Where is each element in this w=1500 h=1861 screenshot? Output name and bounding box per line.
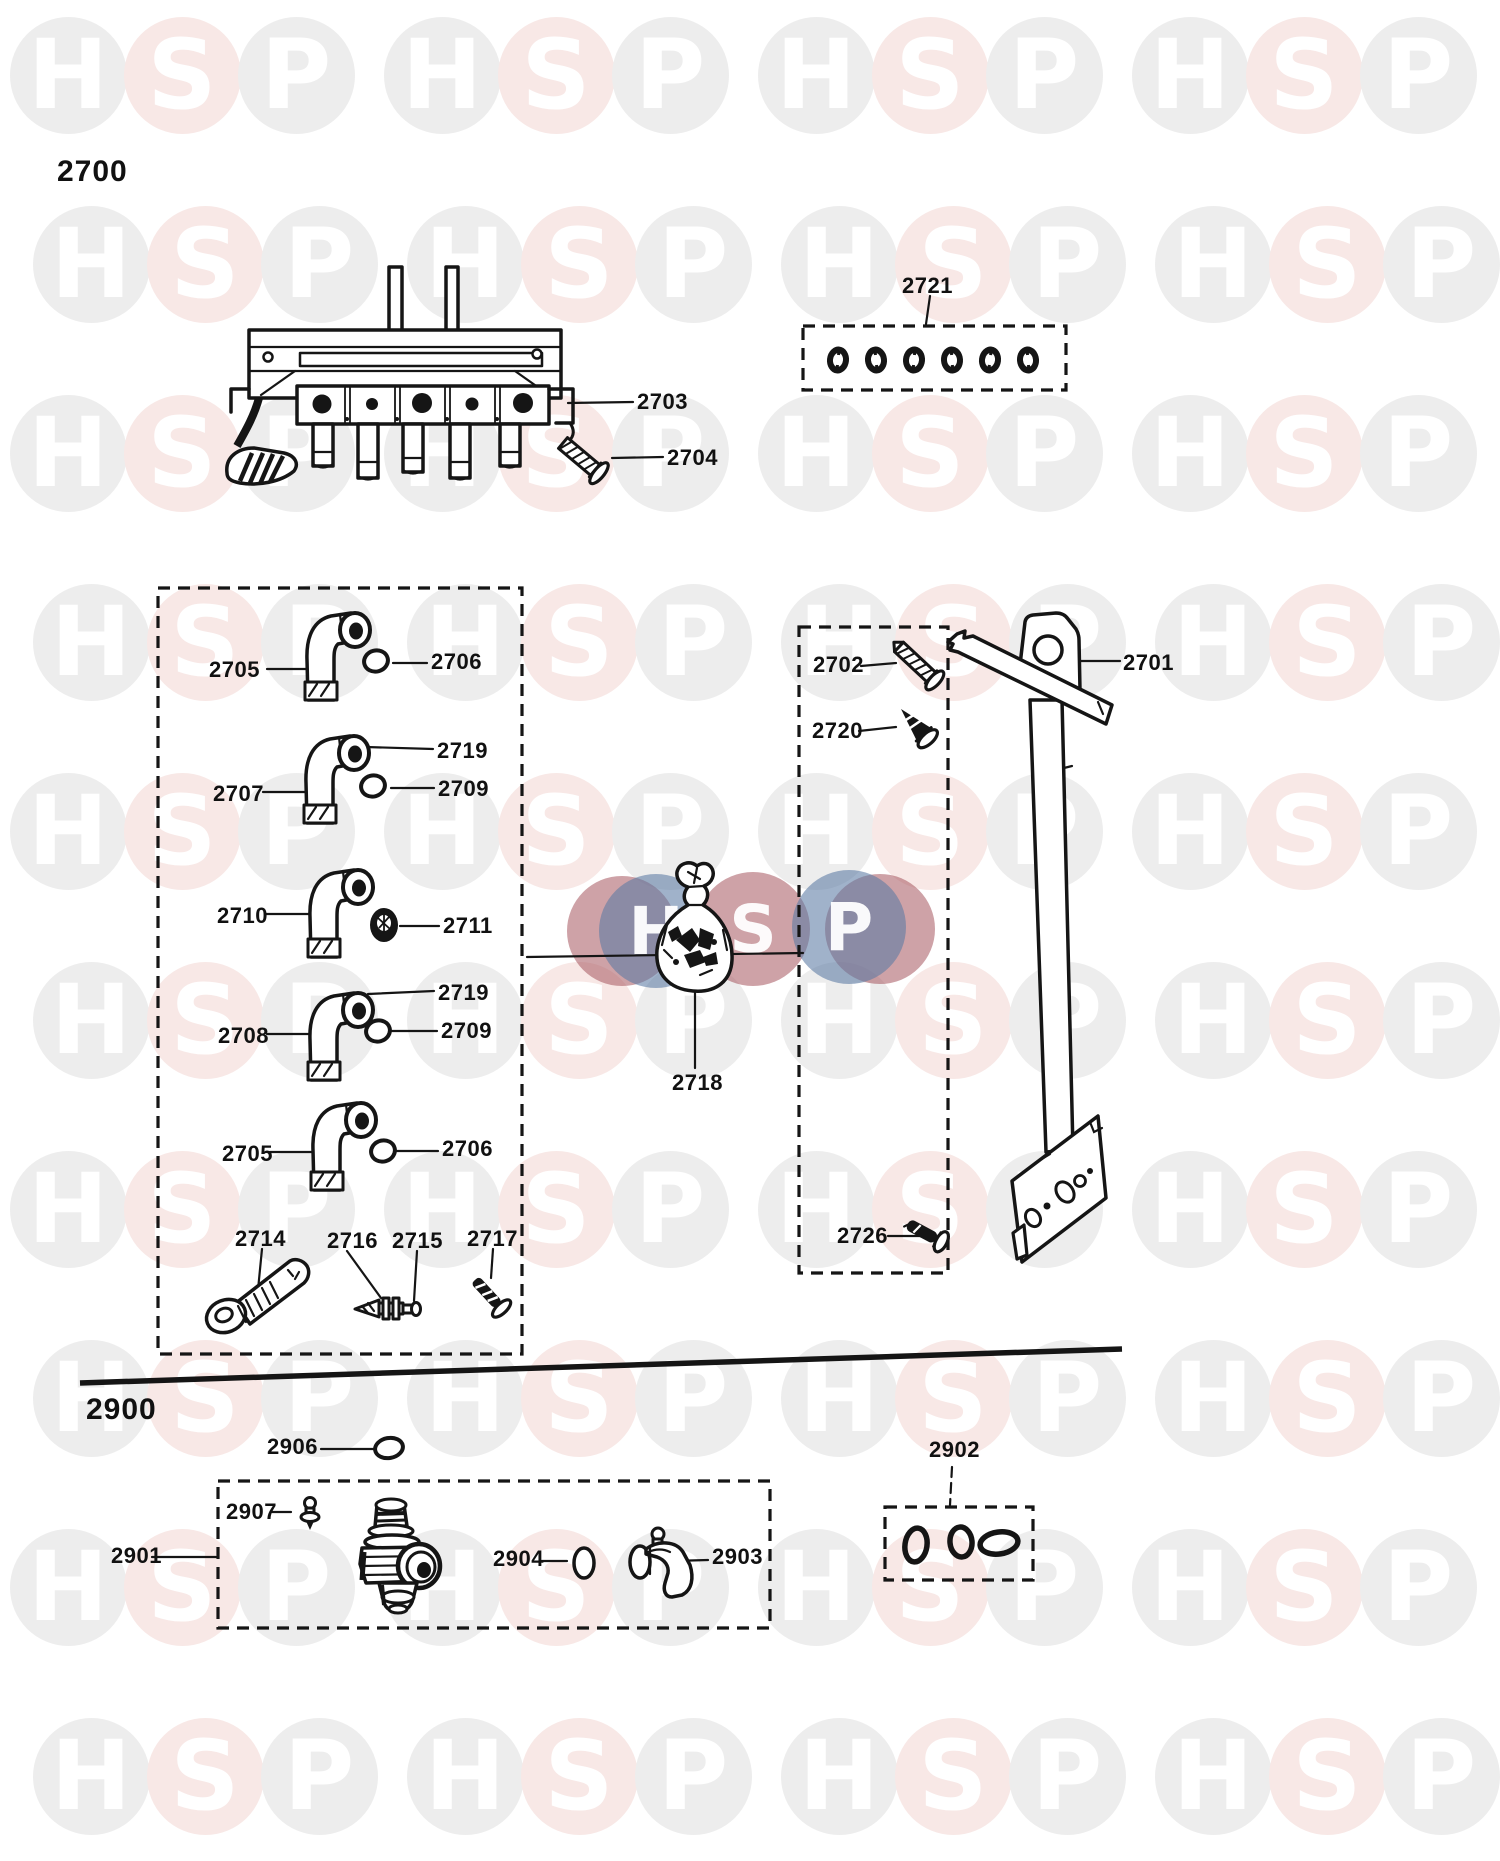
screw-2726	[901, 1213, 952, 1254]
o-ring-2904	[574, 1548, 594, 1578]
screw-2717	[467, 1272, 514, 1320]
part-label-2904: 2904	[493, 1546, 544, 1572]
injector-2705-top	[305, 613, 370, 700]
part-label-2719-bottom: 2719	[438, 980, 489, 1006]
part-label-2702: 2702	[813, 652, 864, 678]
part-label-2720: 2720	[812, 718, 863, 744]
part-label-2715: 2715	[392, 1228, 443, 1254]
injector-2710	[308, 870, 373, 957]
part-label-2716: 2716	[327, 1228, 378, 1254]
part-label-2719-top: 2719	[437, 738, 488, 764]
part-label-2721: 2721	[902, 273, 953, 299]
screw-2704	[555, 433, 612, 486]
screw-2907	[301, 1498, 319, 1531]
part-label-2707: 2707	[213, 781, 264, 807]
part-label-2711: 2711	[443, 913, 493, 939]
part-label-2710: 2710	[217, 903, 268, 929]
o-ring-2709-top	[359, 773, 388, 799]
needle-2716-2715	[355, 1298, 421, 1319]
part-label-2718: 2718	[672, 1070, 723, 1096]
outlet-elbow-2903	[630, 1528, 692, 1597]
part-label-2701: 2701	[1123, 650, 1174, 676]
part-label-2703: 2703	[637, 389, 688, 415]
injector-2707	[304, 736, 369, 823]
part-label-2708: 2708	[218, 1023, 269, 1049]
part-label-2907: 2907	[226, 1499, 277, 1525]
part-label-2902: 2902	[929, 1437, 980, 1463]
screw-2720	[892, 701, 940, 751]
mounting-bracket-2701	[948, 613, 1112, 1262]
valve-2901	[360, 1499, 440, 1613]
seal-kit-2902	[903, 1526, 1020, 1563]
section-header-2900: 2900	[86, 1393, 157, 1427]
bracket-2714	[201, 1260, 308, 1339]
leader-lines	[152, 296, 1120, 1561]
burner-manifold-2703	[227, 267, 573, 484]
section-divider	[80, 1349, 1122, 1383]
part-label-2709-top: 2709	[438, 776, 489, 802]
part-label-2704: 2704	[667, 445, 718, 471]
part-label-2705-bottom: 2705	[222, 1141, 273, 1167]
part-label-2706-bottom: 2706	[442, 1136, 493, 1162]
o-ring-2906	[373, 1436, 404, 1461]
o-ring-2706-bottom	[369, 1138, 398, 1164]
diagram-canvas	[0, 0, 1500, 1861]
part-label-2706-top: 2706	[431, 649, 482, 675]
part-label-2903: 2903	[712, 1544, 763, 1570]
part-label-2717: 2717	[467, 1226, 518, 1252]
part-label-2726: 2726	[837, 1223, 888, 1249]
part-label-2705-top: 2705	[209, 657, 260, 683]
injector-2705-bottom	[311, 1103, 376, 1190]
section-header-2700: 2700	[57, 155, 128, 189]
part-label-2709-bottom: 2709	[441, 1018, 492, 1044]
part-label-2901: 2901	[111, 1543, 162, 1569]
injector-2708	[308, 993, 373, 1080]
part-label-2714: 2714	[235, 1226, 286, 1252]
washer-kit-2721	[826, 345, 1040, 374]
o-ring-2706-top	[362, 648, 391, 674]
parts-diagram-page: HSPHSPHSPHSPHSPHSPHSPHSPHSPHSPHSPHSPHSPH…	[0, 0, 1500, 1861]
parts-bag-2718	[657, 863, 732, 991]
part-label-2906: 2906	[267, 1434, 318, 1460]
grommet-2711	[370, 908, 398, 942]
